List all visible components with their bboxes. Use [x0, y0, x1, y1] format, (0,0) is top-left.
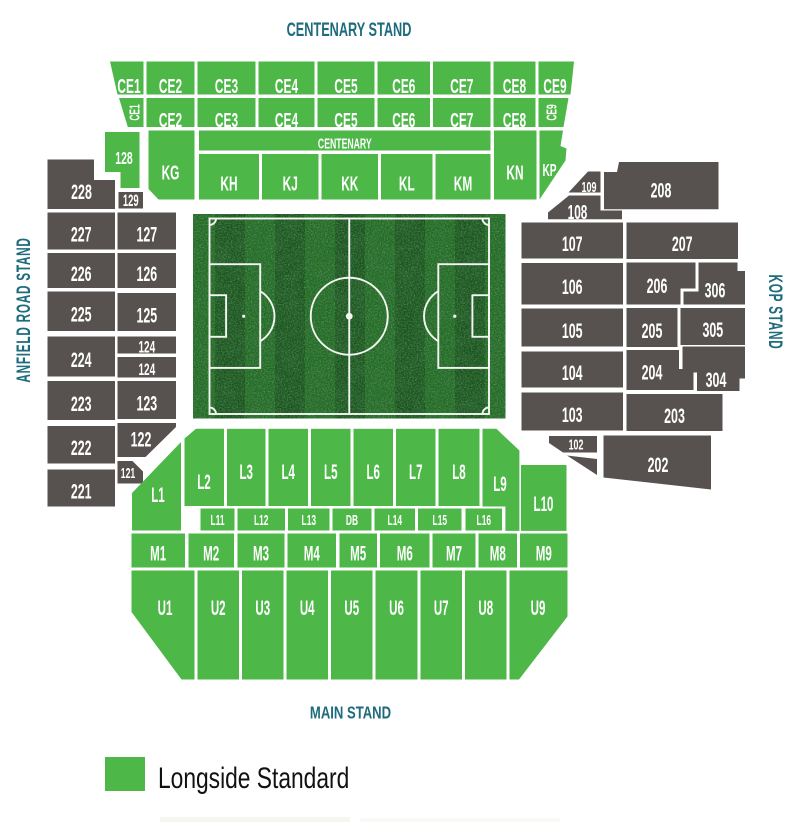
svg-text:L13: L13 — [302, 511, 317, 528]
svg-text:204: 204 — [642, 360, 663, 384]
svg-text:105: 105 — [562, 318, 583, 342]
svg-text:CE1: CE1 — [126, 104, 143, 121]
svg-text:CE2: CE2 — [159, 109, 182, 132]
svg-text:U1: U1 — [158, 596, 173, 620]
svg-text:CE5: CE5 — [334, 109, 357, 132]
svg-text:U4: U4 — [300, 596, 315, 620]
svg-text:KK: KK — [341, 172, 358, 195]
svg-text:M4: M4 — [304, 542, 320, 566]
svg-text:109: 109 — [582, 179, 597, 196]
svg-text:305: 305 — [702, 317, 723, 341]
svg-text:U5: U5 — [344, 596, 359, 620]
svg-text:202: 202 — [648, 452, 669, 476]
svg-text:U7: U7 — [434, 596, 449, 620]
svg-text:221: 221 — [71, 479, 92, 503]
svg-text:L5: L5 — [324, 460, 337, 484]
svg-text:L1: L1 — [151, 483, 164, 507]
svg-text:121: 121 — [121, 464, 136, 481]
svg-text:L16: L16 — [477, 511, 492, 528]
svg-text:306: 306 — [705, 278, 726, 302]
svg-text:CE7: CE7 — [450, 109, 473, 132]
svg-text:CENTENARY STAND: CENTENARY STAND — [287, 19, 412, 40]
svg-text:KN: KN — [506, 161, 523, 184]
svg-text:KL: KL — [399, 172, 415, 195]
svg-text:U2: U2 — [211, 596, 226, 620]
svg-text:CE3: CE3 — [215, 75, 238, 98]
svg-text:129: 129 — [123, 191, 139, 209]
svg-text:L12: L12 — [254, 511, 269, 528]
svg-text:M6: M6 — [397, 542, 413, 566]
svg-text:Longside Standard: Longside Standard — [158, 761, 349, 795]
svg-text:128: 128 — [115, 149, 132, 169]
svg-text:M1: M1 — [150, 542, 166, 566]
svg-text:CE2: CE2 — [159, 75, 182, 98]
svg-text:KJ: KJ — [283, 172, 298, 195]
svg-text:KOP STAND: KOP STAND — [764, 275, 784, 350]
svg-text:CE9: CE9 — [543, 104, 560, 121]
svg-text:ANFIELD ROAD STAND: ANFIELD ROAD STAND — [14, 237, 34, 382]
svg-text:106: 106 — [562, 275, 583, 299]
svg-text:127: 127 — [136, 222, 157, 246]
svg-text:103: 103 — [562, 402, 583, 426]
svg-text:CE6: CE6 — [392, 75, 415, 98]
svg-text:104: 104 — [562, 360, 583, 384]
svg-text:CE4: CE4 — [275, 75, 299, 98]
svg-text:U3: U3 — [255, 596, 270, 620]
svg-text:224: 224 — [71, 347, 92, 371]
svg-text:M8: M8 — [490, 542, 506, 566]
svg-text:M7: M7 — [446, 542, 462, 566]
svg-text:206: 206 — [647, 273, 668, 297]
svg-text:207: 207 — [672, 232, 693, 256]
svg-text:L2: L2 — [197, 470, 210, 494]
svg-text:CE5: CE5 — [334, 75, 357, 98]
svg-text:CE3: CE3 — [215, 109, 238, 132]
svg-text:KM: KM — [454, 172, 472, 195]
svg-text:CE8: CE8 — [503, 109, 526, 132]
svg-text:124: 124 — [138, 359, 155, 378]
svg-text:226: 226 — [71, 261, 92, 285]
svg-text:L11: L11 — [210, 511, 224, 528]
svg-text:205: 205 — [642, 318, 663, 342]
svg-text:KG: KG — [162, 161, 180, 184]
svg-text:U6: U6 — [389, 596, 404, 620]
svg-text:304: 304 — [706, 367, 727, 391]
svg-text:L9: L9 — [493, 472, 506, 496]
svg-text:M9: M9 — [536, 542, 552, 566]
svg-text:M2: M2 — [203, 542, 219, 566]
svg-text:L7: L7 — [409, 460, 422, 484]
svg-text:CE7: CE7 — [450, 75, 473, 98]
svg-text:L6: L6 — [366, 460, 379, 484]
svg-text:CE8: CE8 — [503, 75, 526, 98]
svg-text:223: 223 — [71, 391, 92, 415]
svg-text:L14: L14 — [388, 511, 403, 528]
svg-text:M3: M3 — [253, 542, 269, 566]
svg-text:L15: L15 — [433, 511, 448, 528]
svg-text:L8: L8 — [452, 460, 465, 484]
svg-text:CENTENARY: CENTENARY — [318, 135, 372, 152]
svg-text:L10: L10 — [534, 492, 554, 516]
svg-text:MAIN STAND: MAIN STAND — [310, 704, 391, 723]
svg-text:CE6: CE6 — [392, 109, 415, 132]
svg-text:228: 228 — [71, 179, 92, 203]
svg-text:222: 222 — [71, 436, 92, 460]
svg-text:CE1: CE1 — [117, 75, 140, 98]
svg-text:CE9: CE9 — [543, 75, 566, 98]
svg-text:225: 225 — [71, 302, 92, 326]
svg-text:227: 227 — [71, 222, 92, 246]
svg-text:123: 123 — [136, 391, 157, 415]
svg-text:U8: U8 — [478, 596, 493, 620]
svg-text:125: 125 — [136, 303, 157, 327]
svg-text:107: 107 — [562, 231, 583, 255]
svg-text:DB: DB — [346, 511, 358, 528]
svg-text:203: 203 — [664, 403, 685, 427]
svg-text:KH: KH — [220, 172, 237, 195]
svg-text:208: 208 — [651, 178, 672, 202]
svg-text:M5: M5 — [350, 542, 366, 566]
svg-text:122: 122 — [131, 427, 152, 451]
svg-text:126: 126 — [136, 261, 157, 285]
svg-text:108: 108 — [568, 202, 588, 224]
svg-text:L3: L3 — [239, 460, 252, 484]
svg-text:KP: KP — [542, 161, 556, 181]
svg-text:CE4: CE4 — [275, 109, 299, 132]
svg-text:U9: U9 — [531, 596, 546, 620]
svg-text:L4: L4 — [281, 460, 295, 484]
svg-text:124: 124 — [138, 337, 155, 356]
svg-text:102: 102 — [569, 436, 584, 453]
